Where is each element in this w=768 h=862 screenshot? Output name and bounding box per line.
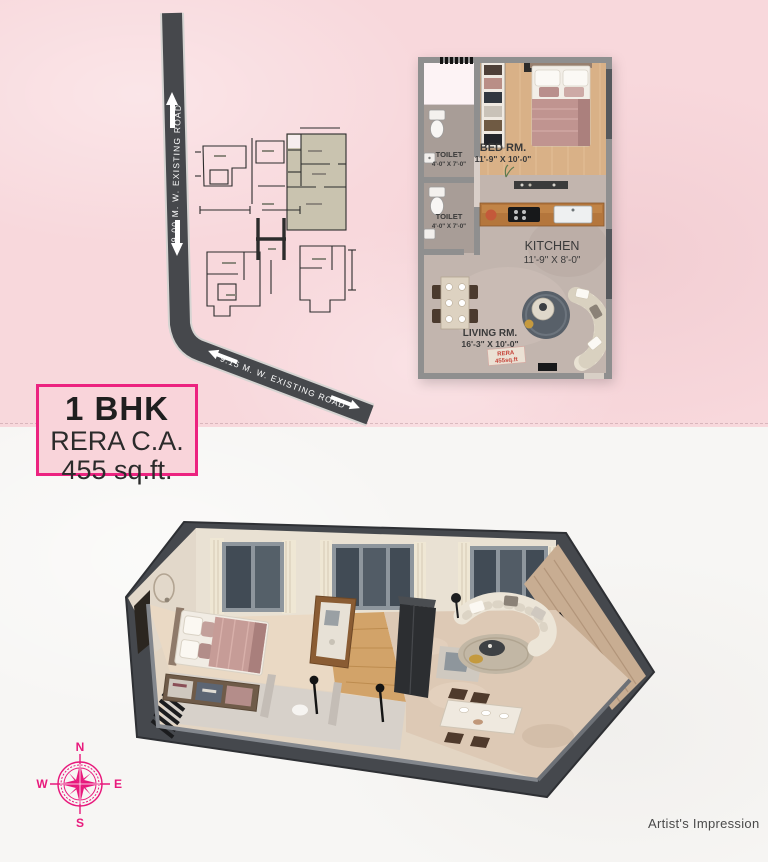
kitchen-island-3d bbox=[310, 596, 356, 668]
unit-rera-label: RERA C.A. bbox=[39, 426, 195, 457]
diagonal-road-label: 9.15 M. W. EXISTING ROAD bbox=[219, 353, 347, 410]
toilet-bottom-dims: 4'-0" X 7'-0" bbox=[432, 223, 466, 230]
kitchen-label: KITCHEN bbox=[525, 239, 580, 253]
rera-stamp: RERA 455sq.ft bbox=[487, 346, 525, 365]
unit-type-card: 1 BHK RERA C.A. 455 sq.ft. bbox=[36, 384, 198, 476]
toilet-bottom-label: TOILET bbox=[436, 212, 463, 221]
window-bedroom bbox=[210, 538, 296, 615]
wardrobe bbox=[481, 62, 505, 148]
living-rug bbox=[522, 291, 570, 339]
site-plan: 9.00 M. W. EXISTING ROAD 9.15 M. W. EXIS… bbox=[0, 0, 410, 432]
key-plan-highlighted-unit bbox=[287, 134, 346, 230]
living-rug-3d bbox=[458, 634, 534, 674]
floor-plan-2d: BED RM. 11'-9" X 10'-0" TOILET 4'-0" X 7… bbox=[418, 57, 612, 379]
kitchen-dims: 11'-9" X 8'-0" bbox=[524, 255, 581, 266]
toilet-top-dims: 4'-0" X 7'-0" bbox=[432, 161, 466, 168]
window-right-2 bbox=[606, 229, 612, 299]
compass-east-label: E bbox=[114, 777, 122, 791]
unit-area-value: 455 sq.ft. bbox=[39, 455, 195, 486]
window-right-1 bbox=[606, 69, 612, 139]
isometric-render bbox=[118, 496, 666, 812]
artists-impression-note: Artist's Impression bbox=[648, 816, 759, 831]
living-label: LIVING RM. bbox=[463, 328, 518, 339]
compass-west-label: W bbox=[36, 777, 48, 791]
compass-north-label: N bbox=[76, 740, 85, 754]
compass-rose-icon: N E S W bbox=[30, 734, 130, 834]
bedroom-dims: 11'-9" X 10'-0" bbox=[475, 154, 532, 164]
bedroom-label: BED RM. bbox=[480, 142, 526, 154]
duct-void bbox=[422, 61, 476, 105]
brochure-page: 9.00 M. W. EXISTING ROAD 9.15 M. W. EXIS… bbox=[0, 0, 768, 862]
tv-unit bbox=[538, 363, 557, 371]
bed bbox=[524, 60, 592, 146]
toilet-top-label: TOILET bbox=[436, 150, 463, 159]
entrance-gap bbox=[584, 373, 604, 379]
key-plan bbox=[195, 128, 356, 316]
unit-type-title: 1 BHK bbox=[39, 390, 195, 428]
compass-south-label: S bbox=[76, 816, 84, 830]
